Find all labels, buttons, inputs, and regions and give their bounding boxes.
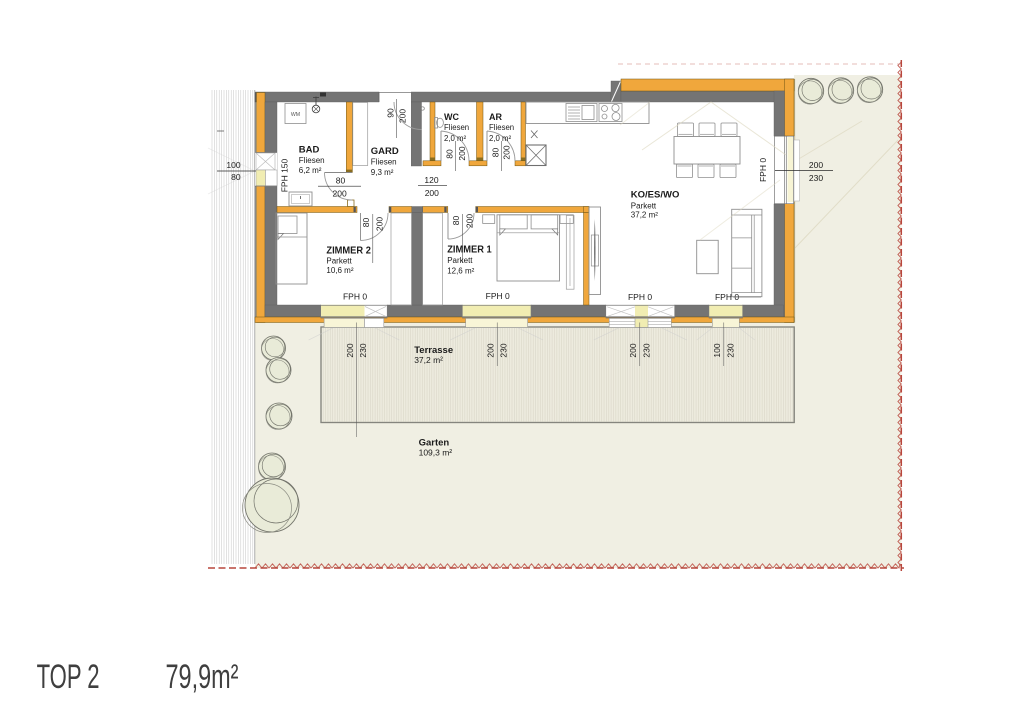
svg-text:ZIMMER 1: ZIMMER 1 [447,245,492,256]
svg-text:WC: WC [444,112,459,122]
svg-text:Fliesen: Fliesen [489,123,514,132]
svg-text:200: 200 [375,217,385,231]
svg-text:80: 80 [231,172,241,182]
svg-text:2,0 m²: 2,0 m² [489,134,511,143]
svg-text:120: 120 [424,175,438,185]
svg-text:200: 200 [628,343,638,357]
svg-text:FPH 0: FPH 0 [486,291,510,301]
svg-text:200: 200 [457,146,467,160]
svg-text:230: 230 [809,173,823,183]
svg-text:230: 230 [499,343,509,357]
svg-text:200: 200 [809,160,823,170]
svg-text:80: 80 [491,148,501,158]
svg-text:200: 200 [502,145,512,159]
svg-text:80: 80 [361,218,371,228]
svg-text:80: 80 [445,149,455,159]
svg-text:12,6 m²: 12,6 m² [447,266,474,275]
svg-text:6,2 m²: 6,2 m² [299,166,322,175]
svg-text:Parkett: Parkett [631,201,657,210]
svg-text:Parkett: Parkett [447,256,473,265]
svg-text:Fliesen: Fliesen [371,158,397,167]
svg-text:90: 90 [386,108,396,118]
svg-text:KO/ES/WO: KO/ES/WO [631,190,680,201]
svg-text:100: 100 [712,343,722,357]
svg-text:Fliesen: Fliesen [299,156,325,165]
svg-text:GARD: GARD [371,146,399,157]
svg-text:37,2 m²: 37,2 m² [414,355,443,365]
svg-text:FPH 0: FPH 0 [343,292,367,302]
svg-text:200: 200 [345,343,355,357]
svg-text:37,2 m²: 37,2 m² [631,211,658,220]
svg-text:200: 200 [465,214,475,228]
svg-text:FPH 0: FPH 0 [628,292,652,302]
svg-text:TOP 2: TOP 2 [37,658,100,696]
svg-text:10,6 m²: 10,6 m² [326,266,353,275]
svg-text:200: 200 [486,343,496,357]
svg-text:200: 200 [333,189,347,199]
svg-text:79,9m²: 79,9m² [166,658,239,696]
svg-text:200: 200 [398,109,408,123]
svg-text:ZIMMER 2: ZIMMER 2 [326,245,371,256]
svg-text:230: 230 [725,343,735,357]
svg-text:Parkett: Parkett [326,256,352,265]
svg-text:FPH 150: FPH 150 [280,158,290,192]
svg-text:230: 230 [358,343,368,357]
svg-text:FPH 0: FPH 0 [758,158,768,182]
svg-text:Fliesen: Fliesen [444,123,469,132]
svg-text:WM: WM [291,112,300,118]
svg-text:2,0 m²: 2,0 m² [444,134,466,143]
svg-text:AR: AR [489,112,502,122]
svg-text:80: 80 [336,176,346,186]
svg-text:BAD: BAD [299,144,320,155]
svg-text:9,3 m²: 9,3 m² [371,168,394,177]
svg-text:200: 200 [425,188,439,198]
svg-text:100: 100 [226,160,240,170]
svg-text:109,3 m²: 109,3 m² [419,448,453,458]
svg-text:80: 80 [451,216,461,226]
svg-text:230: 230 [641,343,651,357]
